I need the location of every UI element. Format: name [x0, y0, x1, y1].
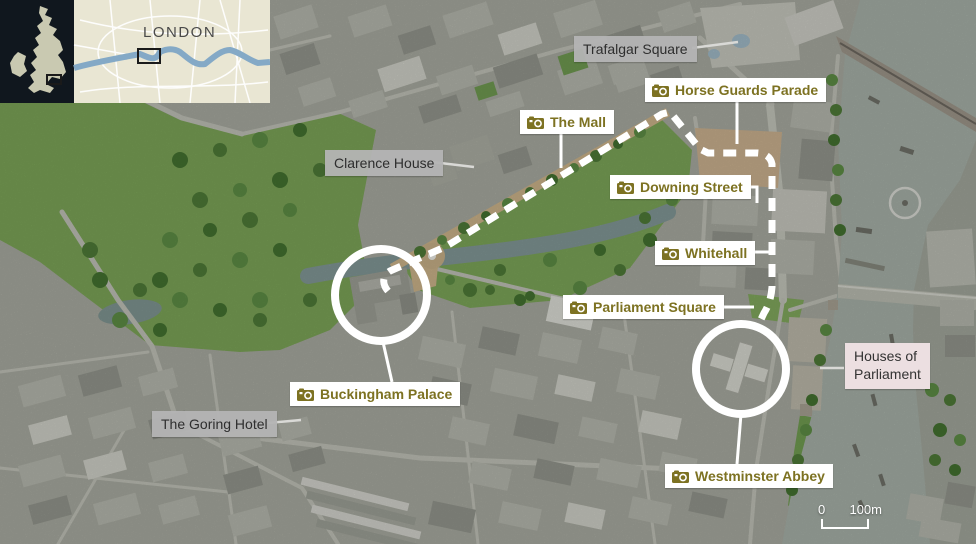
label-text: Clarence House	[334, 155, 434, 171]
inset-map: LONDON	[0, 0, 270, 103]
camera-icon	[617, 181, 634, 194]
map-label-houses-of-parliament: Houses ofParliament	[845, 343, 930, 389]
map-label-whitehall[interactable]: Whitehall	[655, 241, 755, 265]
label-text: Downing Street	[640, 179, 743, 195]
camera-icon	[652, 84, 669, 97]
map-label-trafalgar-square: Trafalgar Square	[574, 36, 697, 62]
camera-icon	[662, 247, 679, 260]
map-label-parliament-square[interactable]: Parliament Square	[563, 295, 724, 319]
label-text: Parliament Square	[593, 299, 716, 315]
map-label-the-goring-hotel: The Goring Hotel	[152, 411, 277, 437]
scale-zero: 0	[818, 502, 825, 517]
map-label-the-mall[interactable]: The Mall	[520, 110, 614, 134]
label-text: Trafalgar Square	[583, 41, 688, 57]
label-text-line: Houses of	[854, 348, 921, 366]
scale-bracket	[821, 519, 869, 529]
inset-region-label: LONDON	[143, 24, 216, 41]
map-label-buckingham-palace[interactable]: Buckingham Palace	[290, 382, 460, 406]
map-label-horse-guards-parade[interactable]: Horse Guards Parade	[645, 78, 826, 102]
uk-locator	[0, 0, 74, 103]
map-label-westminster-abbey[interactable]: Westminster Abbey	[665, 464, 833, 488]
camera-icon	[570, 301, 587, 314]
camera-icon	[297, 388, 314, 401]
scale-bar: 0 100m	[818, 502, 882, 529]
map-label-downing-street[interactable]: Downing Street	[610, 175, 751, 199]
label-text: Buckingham Palace	[320, 386, 452, 402]
royal-route-map: Trafalgar SquareHorse Guards ParadeThe M…	[0, 0, 976, 544]
camera-icon	[672, 470, 689, 483]
label-text: Whitehall	[685, 245, 747, 261]
label-text: The Mall	[550, 114, 606, 130]
label-text-line: Parliament	[854, 366, 921, 384]
label-text: The Goring Hotel	[161, 416, 268, 432]
label-text: Westminster Abbey	[695, 468, 825, 484]
scale-distance: 100m	[849, 502, 882, 517]
map-label-clarence-house: Clarence House	[325, 150, 443, 176]
label-text: Horse Guards Parade	[675, 82, 818, 98]
camera-icon	[527, 116, 544, 129]
london-locator: LONDON	[74, 0, 270, 103]
